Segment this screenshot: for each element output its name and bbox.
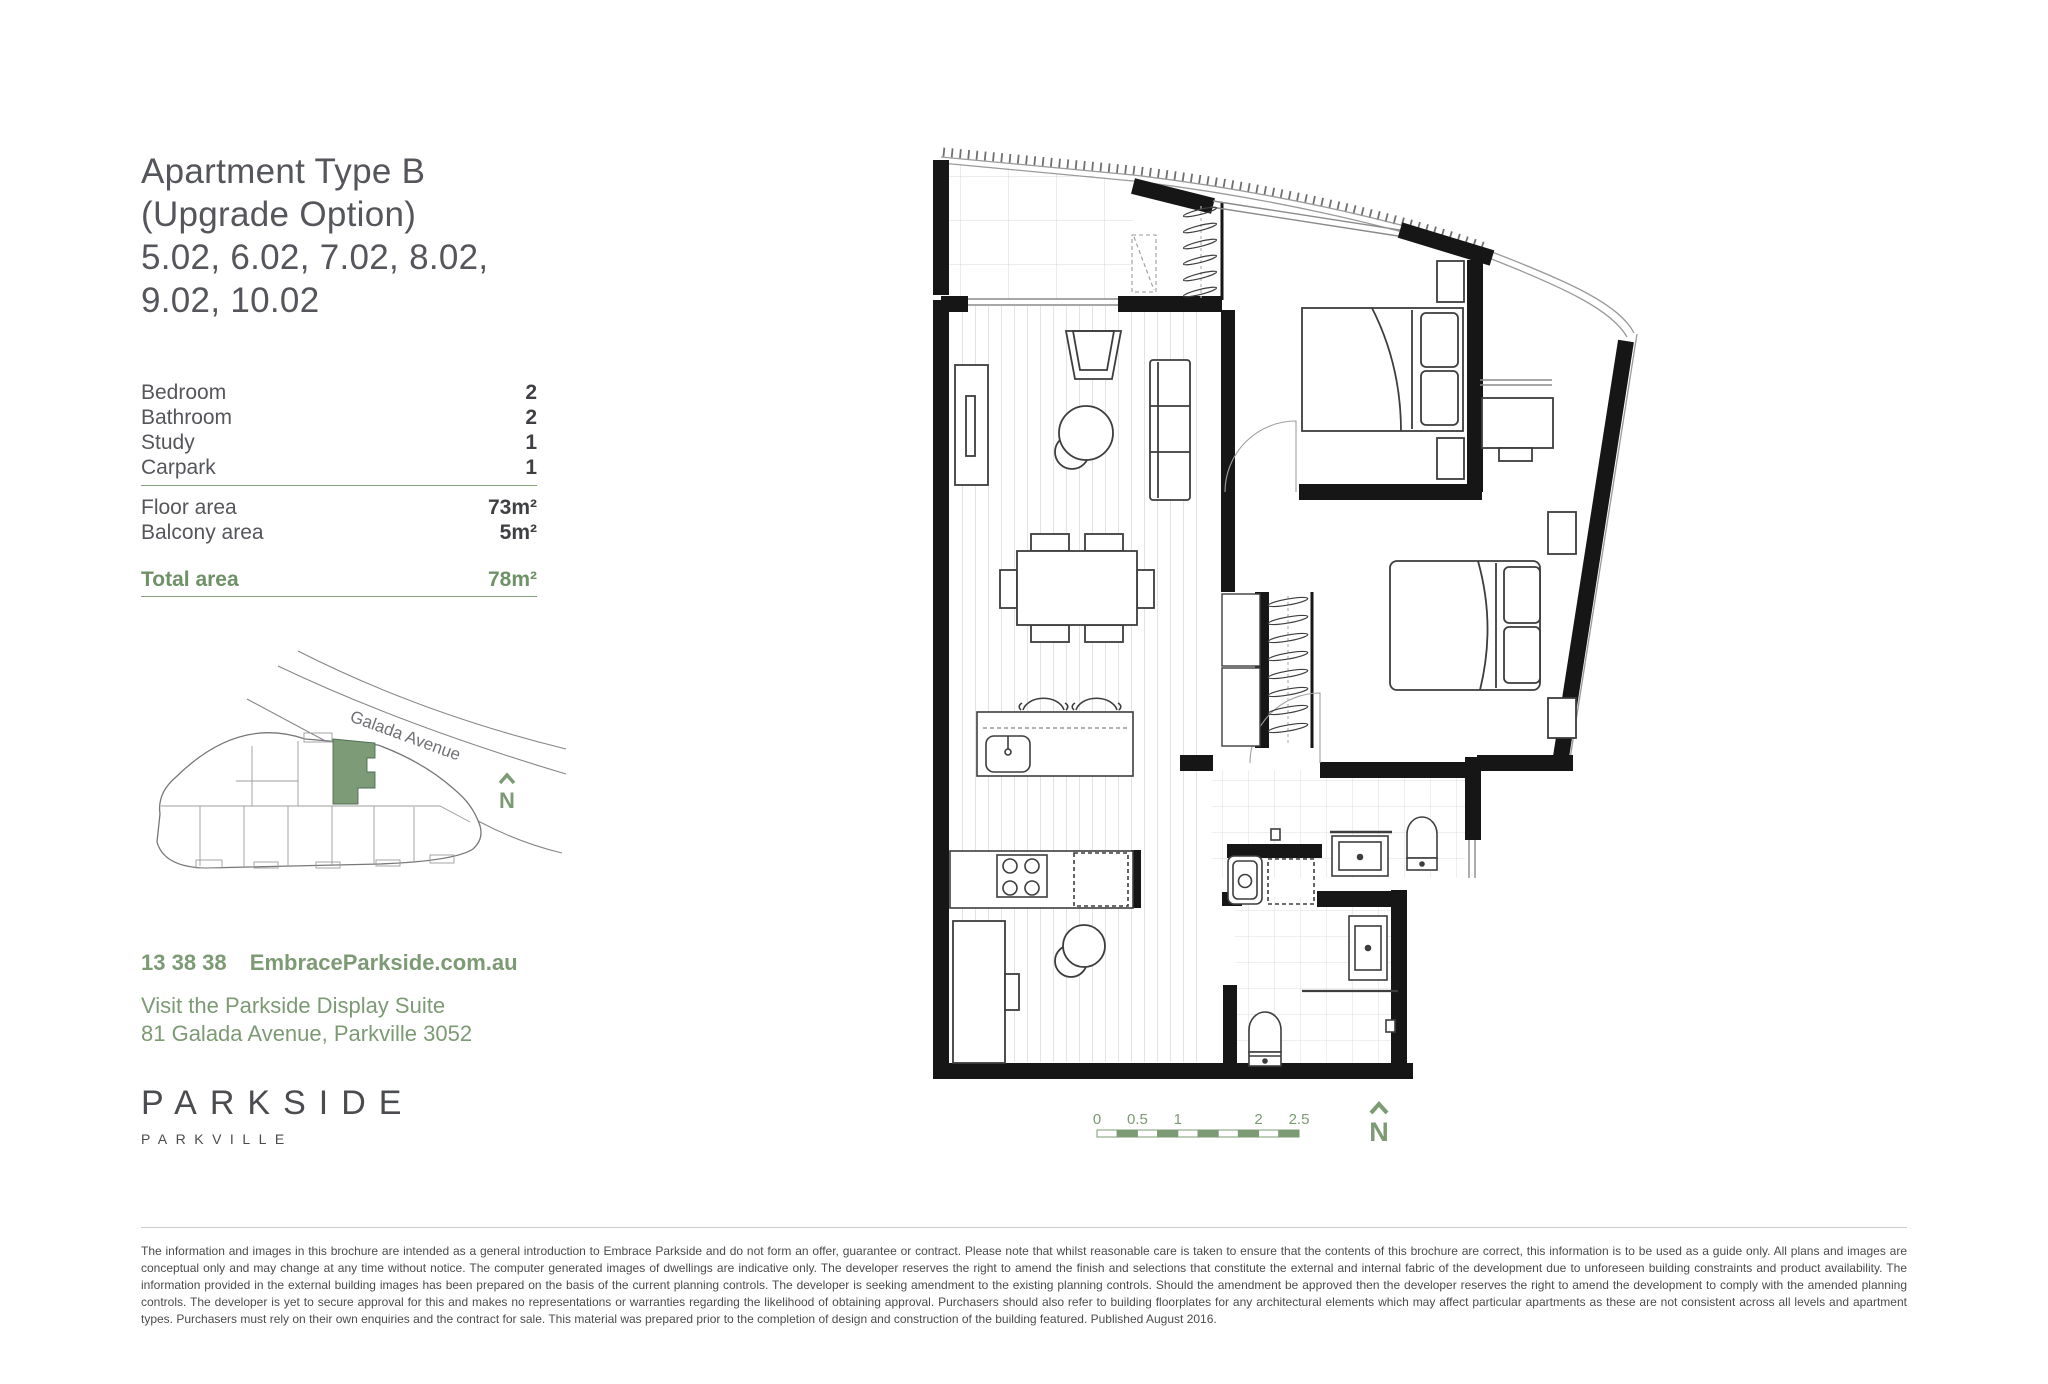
parkside-logo: PARKSIDE PARKVILLE [141,1084,414,1147]
scale-tick-label: 0.5 [1127,1111,1148,1128]
bedside-table [1548,512,1576,554]
site-map: Galada Avenue N [140,630,570,900]
armchair [1066,331,1121,379]
contact-row: 13 38 38 EmbraceParkside.com.au [141,950,518,976]
dining-chair [1031,534,1069,551]
hall-cabinet [1222,668,1260,746]
bedside-table [1548,698,1576,738]
dining-chair [1000,570,1017,608]
spec-row-total-area: Total area 78m² [141,567,537,592]
spec-label: Balcony area [141,520,264,545]
tv-cabinet [955,365,988,485]
scale-tick-label: 2.5 [1289,1111,1310,1128]
wardrobe-2 [1268,596,1308,744]
dining-table [1017,551,1137,625]
bed-1 [1302,308,1463,431]
spec-row-study: Study 1 [141,430,537,455]
logo-subtitle: PARKVILLE [141,1131,414,1147]
spec-label: Total area [141,567,239,592]
spec-row-bathroom: Bathroom 2 [141,405,537,430]
scale-tick-label: 2 [1254,1111,1262,1128]
study-desk [953,921,1005,1063]
shower-head [1386,1020,1395,1032]
spec-label: Bathroom [141,405,232,430]
north-letter: N [499,788,515,813]
condenser-unit [1132,235,1156,292]
spec-value: 78m² [488,567,537,592]
contact-block: 13 38 38 EmbraceParkside.com.au Visit th… [141,950,518,1048]
area-rows: Floor area 73m² Balcony area 5m² [141,495,537,545]
title-line-4: 9.02, 10.02 [141,279,488,322]
toilet-1 [1407,817,1437,870]
north-compass-icon: N [1369,1104,1389,1147]
toilet-2 [1249,1012,1281,1066]
spec-table: Bedroom 2 Bathroom 2 Study 1 Carpark 1 F… [141,380,537,597]
study-chair [1063,925,1105,967]
page-title: Apartment Type B (Upgrade Option) 5.02, … [141,150,488,322]
website-link[interactable]: EmbraceParkside.com.au [250,950,518,975]
laundry-sink [1228,856,1262,904]
vanity-1 [1330,832,1392,876]
dining-chair [1137,570,1154,608]
spec-value: 73m² [488,495,537,520]
scale-tick-label: 1 [1174,1111,1182,1128]
sofa [1150,360,1190,500]
bedside-table [1437,261,1464,302]
desk-1 [1482,398,1553,461]
title-line-3: 5.02, 6.02, 7.02, 8.02, [141,236,488,279]
spec-row-balcony-area: Balcony area 5m² [141,520,537,545]
title-line-1: Apartment Type B [141,150,488,193]
spec-value: 5m² [500,520,537,545]
spec-row-floor-area: Floor area 73m² [141,495,537,520]
spec-value: 1 [525,430,537,455]
dining-chair [1085,625,1123,642]
dining-furniture [1000,534,1154,642]
cooktop [997,855,1047,897]
visit-lines: Visit the Parkside Display Suite 81 Gala… [141,992,518,1048]
visit-line-2: 81 Galada Avenue, Parkville 3052 [141,1020,518,1048]
dining-chair [1085,534,1123,551]
north-letter: N [1369,1117,1389,1147]
scale-tick-label: 0 [1093,1111,1101,1128]
spec-value: 2 [525,380,537,405]
rear-bench [950,851,1133,908]
spec-row-carpark: Carpark 1 [141,455,537,480]
table-rule [141,596,537,597]
spec-value: 1 [525,455,537,480]
title-line-2: (Upgrade Option) [141,193,488,236]
footer-divider [141,1227,1907,1228]
floorplan-drawing: 0 0.5 1 2 2.5 N [690,100,1650,1160]
vanity-2 [1349,916,1387,980]
balcony-floor [944,162,1133,298]
spec-label: Bedroom [141,380,226,405]
phone-number: 13 38 38 [141,950,227,975]
brochure-page: Apartment Type B (Upgrade Option) 5.02, … [0,0,2048,1384]
shower-head [1271,829,1280,840]
wardrobe-1 [1183,205,1217,298]
dining-chair [1031,625,1069,642]
bedside-table [1437,438,1464,479]
hall-cabinet [1222,594,1260,666]
scale-bar: 0 0.5 1 2 2.5 [1093,1111,1310,1137]
table-rule [141,485,537,486]
spec-label: Carpark [141,455,216,480]
disclaimer-text: The information and images in this broch… [141,1243,1907,1328]
bedroom-2 [1222,512,1576,746]
logo-wordmark: PARKSIDE [141,1084,414,1123]
visit-line-1: Visit the Parkside Display Suite [141,992,518,1020]
bedroom-1 [1183,205,1553,479]
spec-label: Floor area [141,495,237,520]
spec-value: 2 [525,405,537,430]
spec-label: Study [141,430,195,455]
bed-2 [1390,561,1540,690]
spec-row-bedroom: Bedroom 2 [141,380,537,405]
north-compass-icon: N [499,775,515,813]
island-bench [977,712,1133,776]
